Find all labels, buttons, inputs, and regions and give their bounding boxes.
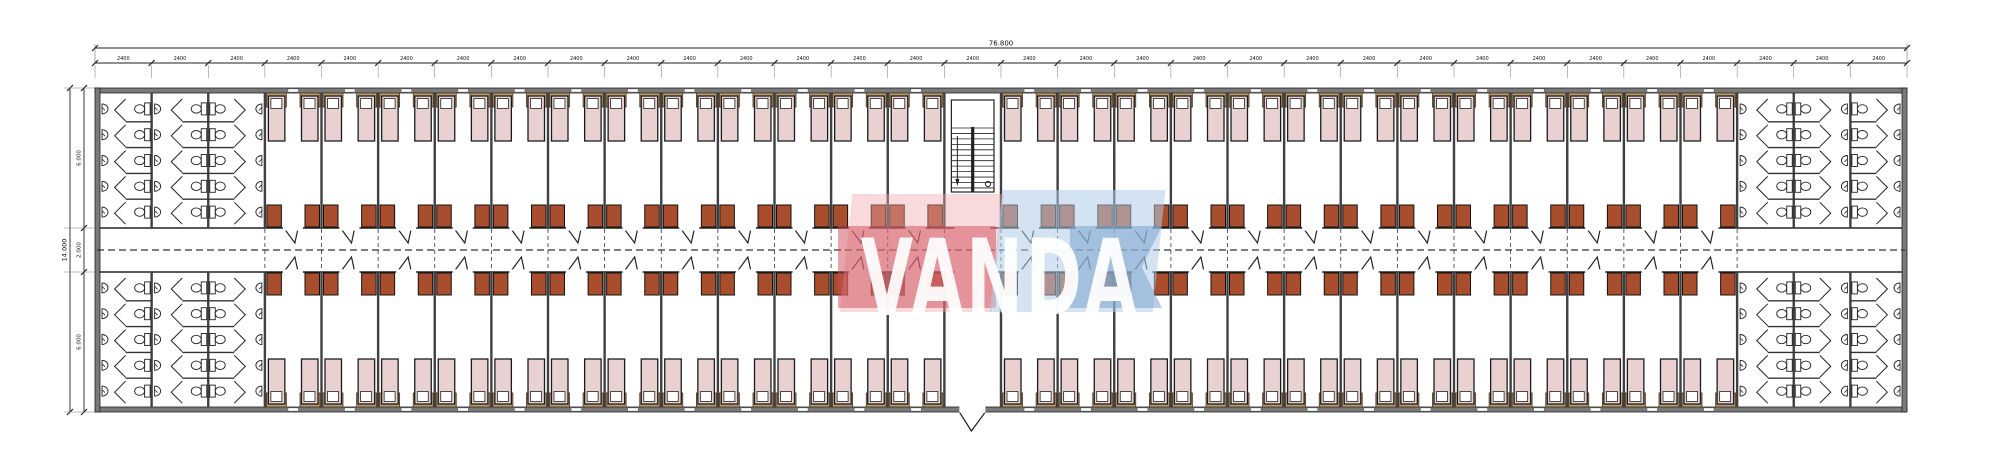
wardrobe-unit xyxy=(1721,273,1736,295)
window-opening xyxy=(798,89,809,92)
pillow xyxy=(1234,392,1245,402)
washbasin-icon xyxy=(155,104,161,114)
pillow xyxy=(1097,392,1108,402)
wardrobe-unit xyxy=(1286,205,1301,227)
pillow xyxy=(441,392,452,402)
door-swing xyxy=(234,99,245,121)
toilet-icon xyxy=(1801,182,1811,190)
toilet-icon xyxy=(1777,156,1787,164)
washbasin-icon xyxy=(256,181,262,191)
washbasin-icon xyxy=(1841,360,1847,370)
toilet-icon xyxy=(1857,182,1867,190)
toilet-icon xyxy=(210,282,216,294)
wardrobe-unit xyxy=(1456,205,1471,227)
wardrobe-unit xyxy=(1041,205,1056,227)
washbasin-icon xyxy=(256,156,262,166)
window-opening xyxy=(1477,89,1488,92)
wardrobe-unit xyxy=(1211,205,1226,227)
wardrobe-unit xyxy=(890,273,905,295)
wardrobe-unit xyxy=(1721,205,1736,227)
window-opening xyxy=(1251,89,1262,92)
pillow xyxy=(644,392,655,402)
wardrobe-unit xyxy=(1268,205,1283,227)
washbasin-icon xyxy=(155,386,161,396)
pillow xyxy=(1493,99,1504,109)
window-opening xyxy=(288,89,299,92)
pillow xyxy=(1347,392,1358,402)
wardrobe-unit xyxy=(701,273,716,295)
washbasin-icon xyxy=(256,130,262,140)
pillow xyxy=(781,99,792,109)
pillow xyxy=(1720,99,1731,109)
door-swing xyxy=(234,381,245,403)
wardrobe-unit xyxy=(720,273,735,295)
dim-bay-label: 2400 xyxy=(457,56,470,62)
toilet-icon xyxy=(145,180,151,192)
window-opening xyxy=(571,408,582,411)
washbasin-icon xyxy=(256,386,262,396)
bathroom-block-left xyxy=(102,99,262,403)
wardrobe-unit xyxy=(493,273,508,295)
wardrobe-unit xyxy=(777,205,792,227)
wardrobe-unit xyxy=(1268,273,1283,295)
door-swing xyxy=(1876,151,1887,173)
pillow xyxy=(1064,392,1075,402)
wardrobe-unit xyxy=(1230,205,1245,227)
window-opening xyxy=(1081,408,1092,411)
wardrobe-unit xyxy=(1513,205,1528,227)
toilet-icon xyxy=(1852,103,1858,115)
pillow xyxy=(1663,392,1674,402)
door-swing xyxy=(234,176,245,198)
washbasin-icon xyxy=(1841,130,1847,140)
toilet-icon xyxy=(215,284,225,292)
pillow xyxy=(667,392,678,402)
toilet-icon xyxy=(1852,308,1858,320)
washbasin-icon xyxy=(1894,309,1900,319)
toilet-icon xyxy=(1857,131,1867,139)
wardrobe-unit xyxy=(324,205,339,227)
door-swing xyxy=(1820,99,1831,121)
wardrobe-unit xyxy=(493,205,508,227)
window-opening xyxy=(1307,408,1318,411)
dimension-lines-top: 76.8002400240024002400240024002400240024… xyxy=(92,40,1910,79)
washbasin-icon xyxy=(155,181,161,191)
pillow xyxy=(700,392,711,402)
toilet-icon xyxy=(135,335,145,343)
stair-stringer xyxy=(971,127,974,192)
wardrobe-unit xyxy=(1098,273,1113,295)
pillow xyxy=(474,99,485,109)
dim-bay-label: 2400 xyxy=(1646,56,1659,62)
door-swing xyxy=(115,202,126,224)
pillow xyxy=(1290,99,1301,109)
wardrobe-unit xyxy=(1173,205,1188,227)
window-opening xyxy=(1194,89,1205,92)
entrance-door xyxy=(959,412,985,431)
toilet-icon xyxy=(135,208,145,216)
toilet-icon xyxy=(145,334,151,346)
toilet-icon xyxy=(1777,284,1787,292)
door-swing xyxy=(1876,99,1887,121)
toilet-icon xyxy=(1801,131,1811,139)
toilet-icon xyxy=(1777,131,1787,139)
toilet-icon xyxy=(1795,334,1801,346)
wardrobe-unit xyxy=(1381,205,1396,227)
pillow xyxy=(304,99,315,109)
window-opening xyxy=(1704,408,1715,411)
washbasin-icon xyxy=(1841,386,1847,396)
pillow xyxy=(384,392,395,402)
pillow xyxy=(1323,392,1334,402)
door-swing xyxy=(234,330,245,352)
door-swing xyxy=(1820,330,1831,352)
toilet-icon xyxy=(1777,361,1787,369)
wardrobe-unit xyxy=(1003,205,1018,227)
pillow xyxy=(814,392,825,402)
washbasin-icon xyxy=(1841,335,1847,345)
washbasin-icon xyxy=(1740,207,1746,217)
toilet-icon xyxy=(191,156,201,164)
wardrobe-unit xyxy=(588,205,603,227)
dim-bay-label: 2400 xyxy=(230,56,243,62)
washbasin-icon xyxy=(256,207,262,217)
window-opening xyxy=(911,89,922,92)
toilet-icon xyxy=(135,387,145,395)
wardrobe-unit xyxy=(1438,205,1453,227)
pillow xyxy=(1120,99,1131,109)
pillow xyxy=(1380,392,1391,402)
wardrobe-unit xyxy=(815,205,830,227)
pillow xyxy=(757,392,768,402)
washbasin-icon xyxy=(102,104,108,114)
window-opening xyxy=(1024,408,1035,411)
wardrobe-unit xyxy=(1626,205,1641,227)
wardrobe-unit xyxy=(267,273,282,295)
washbasin-icon xyxy=(1740,360,1746,370)
toilet-icon xyxy=(191,335,201,343)
washbasin-icon xyxy=(155,360,161,370)
pillow xyxy=(1007,99,1018,109)
pillow xyxy=(611,392,622,402)
toilet-icon xyxy=(191,284,201,292)
window-opening xyxy=(401,89,412,92)
door-swing xyxy=(1757,330,1768,352)
wardrobe-unit xyxy=(1607,273,1622,295)
pillow xyxy=(1290,392,1301,402)
wardrobe-unit xyxy=(645,205,660,227)
pillow xyxy=(724,392,735,402)
toilet-icon xyxy=(1801,156,1811,164)
wardrobe-unit xyxy=(1494,205,1509,227)
window-opening xyxy=(345,89,356,92)
pillow xyxy=(1437,392,1448,402)
door-swing xyxy=(1757,355,1768,377)
toilet-icon xyxy=(145,282,151,294)
washbasin-icon xyxy=(1740,283,1746,293)
toilet-icon xyxy=(210,308,216,320)
wardrobe-unit xyxy=(833,205,848,227)
door-swing xyxy=(115,381,126,403)
washbasin-icon xyxy=(102,360,108,370)
washbasin-icon xyxy=(1894,156,1900,166)
window-opening xyxy=(1364,89,1375,92)
toilet-icon xyxy=(1787,282,1793,294)
dim-bay-label: 2400 xyxy=(1589,56,1602,62)
window-opening xyxy=(1307,89,1318,92)
wardrobe-unit xyxy=(550,205,565,227)
toilet-icon xyxy=(201,206,207,218)
wardrobe-unit xyxy=(267,205,282,227)
door-swing xyxy=(1757,151,1768,173)
toilet-icon xyxy=(1852,206,1858,218)
pillow xyxy=(894,392,905,402)
toilet-icon xyxy=(1795,308,1801,320)
dim-left-segment-label: 2.000 xyxy=(77,242,83,258)
washbasin-icon xyxy=(1894,181,1900,191)
wardrobe-unit xyxy=(720,205,735,227)
pillow xyxy=(1007,392,1018,402)
pillow xyxy=(644,99,655,109)
door-swing xyxy=(1820,278,1831,300)
toilet-icon xyxy=(135,131,145,139)
exterior-wall-bottom xyxy=(95,407,1907,412)
dim-bay-label: 2400 xyxy=(513,56,526,62)
window-opening xyxy=(1137,408,1148,411)
toilet-icon xyxy=(135,105,145,113)
door-swing xyxy=(1820,151,1831,173)
washbasin-icon xyxy=(256,309,262,319)
washbasin-icon xyxy=(256,335,262,345)
washbasin-icon xyxy=(1841,104,1847,114)
toilet-icon xyxy=(191,105,201,113)
washbasin-icon xyxy=(155,130,161,140)
window-opening xyxy=(854,408,865,411)
door-swing xyxy=(171,304,182,326)
toilet-icon xyxy=(1857,284,1867,292)
wardrobe-unit xyxy=(1381,273,1396,295)
dim-bay-label: 2400 xyxy=(627,56,640,62)
window-opening xyxy=(854,89,865,92)
toilet-icon xyxy=(191,182,201,190)
pillow xyxy=(1517,99,1528,109)
pillow xyxy=(1460,392,1471,402)
dim-bay-label: 2400 xyxy=(343,56,356,62)
washbasin-icon xyxy=(102,181,108,191)
dim-bay-label: 2400 xyxy=(910,56,923,62)
toilet-icon xyxy=(1857,387,1867,395)
door-swing xyxy=(1876,202,1887,224)
window-opening xyxy=(1534,408,1545,411)
wardrobe-unit xyxy=(324,273,339,295)
toilet-icon xyxy=(1795,180,1801,192)
toilet-icon xyxy=(1801,105,1811,113)
washbasin-icon xyxy=(1894,104,1900,114)
toilet-icon xyxy=(1801,335,1811,343)
toilet-icon xyxy=(215,335,225,343)
dim-bay-label: 2400 xyxy=(683,56,696,62)
wardrobe-unit xyxy=(1664,205,1679,227)
wardrobe-unit xyxy=(362,205,377,227)
toilet-icon xyxy=(1787,155,1793,167)
washbasin-icon xyxy=(1740,181,1746,191)
wardrobe-unit xyxy=(1607,205,1622,227)
door-swing xyxy=(115,125,126,147)
toilet-icon xyxy=(135,361,145,369)
toilet-icon xyxy=(1852,129,1858,141)
washbasin-icon xyxy=(102,283,108,293)
wardrobe-unit xyxy=(418,273,433,295)
wardrobe-unit xyxy=(1154,205,1169,227)
door-swing xyxy=(1876,304,1887,326)
dim-bay-label: 2400 xyxy=(117,56,130,62)
wardrobe-unit xyxy=(928,273,943,295)
window-opening xyxy=(571,89,582,92)
pillow xyxy=(531,99,542,109)
wardrobe-unit xyxy=(380,273,395,295)
dim-bay-label: 2400 xyxy=(1080,56,1093,62)
door-swing xyxy=(171,151,182,173)
pillow xyxy=(1687,99,1698,109)
toilet-icon xyxy=(215,208,225,216)
dim-bay-label: 2400 xyxy=(1872,56,1885,62)
window-opening xyxy=(288,408,299,411)
pillow xyxy=(814,99,825,109)
pillow xyxy=(1460,99,1471,109)
pillow xyxy=(1573,99,1584,109)
wardrobe-unit xyxy=(305,273,320,295)
wardrobe-unit xyxy=(550,273,565,295)
pillow xyxy=(1550,99,1561,109)
toilet-icon xyxy=(135,284,145,292)
wardrobe-unit xyxy=(1116,273,1131,295)
toilet-icon xyxy=(1777,335,1787,343)
pillow xyxy=(894,99,905,109)
toilet-icon xyxy=(201,180,207,192)
door-swing xyxy=(234,355,245,377)
toilet-icon xyxy=(201,385,207,397)
wardrobe-unit xyxy=(1324,273,1339,295)
pillow xyxy=(271,99,282,109)
toilet-icon xyxy=(1777,387,1787,395)
washbasin-icon xyxy=(102,130,108,140)
wardrobe-unit xyxy=(607,205,622,227)
toilet-icon xyxy=(210,155,216,167)
wardrobe-unit xyxy=(532,273,547,295)
pillow xyxy=(271,392,282,402)
wardrobe-unit xyxy=(663,273,678,295)
toilet-icon xyxy=(201,103,207,115)
toilet-icon xyxy=(145,155,151,167)
door-swing xyxy=(234,278,245,300)
door-swing xyxy=(1820,125,1831,147)
dim-bay-label: 2400 xyxy=(966,56,979,62)
toilet-icon xyxy=(145,103,151,115)
pillow xyxy=(1210,99,1221,109)
wardrobe-unit xyxy=(1513,273,1528,295)
toilet-icon xyxy=(215,131,225,139)
door-swing xyxy=(115,355,126,377)
dim-left-segment-label: 6.000 xyxy=(77,334,83,350)
wardrobe-unit xyxy=(1098,205,1113,227)
pillow xyxy=(1323,99,1334,109)
pillow xyxy=(927,392,938,402)
wardrobe-unit xyxy=(1060,273,1075,295)
door-swing xyxy=(1757,278,1768,300)
toilet-icon xyxy=(1852,359,1858,371)
wardrobe-unit xyxy=(1683,273,1698,295)
wardrobe-unit xyxy=(1551,273,1566,295)
pillow xyxy=(384,99,395,109)
toilet-icon xyxy=(191,208,201,216)
toilet-icon xyxy=(210,180,216,192)
door-swing xyxy=(171,99,182,121)
wardrobe-unit xyxy=(1286,273,1301,295)
pillow xyxy=(1403,99,1414,109)
door-swing xyxy=(1876,278,1887,300)
wardrobe-unit xyxy=(758,273,773,295)
window-opening xyxy=(514,89,525,92)
pillow xyxy=(1120,392,1131,402)
wardrobe-unit xyxy=(380,205,395,227)
window-opening xyxy=(401,408,412,411)
wardrobe-unit xyxy=(532,205,547,227)
pillow xyxy=(1064,99,1075,109)
pillow xyxy=(417,392,428,402)
wardrobe-unit xyxy=(1041,273,1056,295)
wardrobe-unit xyxy=(418,205,433,227)
toilet-icon xyxy=(1787,385,1793,397)
washbasin-icon xyxy=(155,335,161,345)
wardrobe-unit xyxy=(588,273,603,295)
dim-bay-label: 2400 xyxy=(1533,56,1546,62)
washbasin-icon xyxy=(256,104,262,114)
toilet-icon xyxy=(1857,208,1867,216)
washbasin-icon xyxy=(1894,130,1900,140)
pillow xyxy=(1437,99,1448,109)
pillow xyxy=(1097,99,1108,109)
pillow xyxy=(1210,392,1221,402)
wardrobe-unit xyxy=(1626,273,1641,295)
toilet-icon xyxy=(1857,105,1867,113)
toilet-icon xyxy=(1787,206,1793,218)
toilet-icon xyxy=(135,310,145,318)
window-opening xyxy=(345,408,356,411)
window-opening xyxy=(1024,89,1035,92)
pillow xyxy=(1517,392,1528,402)
wardrobe-unit xyxy=(777,273,792,295)
window-opening xyxy=(1647,89,1658,92)
wardrobe-unit xyxy=(1230,273,1245,295)
wardrobe-unit xyxy=(1003,273,1018,295)
pillow xyxy=(757,99,768,109)
toilet-icon xyxy=(210,206,216,218)
door-swing xyxy=(1820,304,1831,326)
exterior-wall-top xyxy=(95,88,1907,93)
toilet-icon xyxy=(210,129,216,141)
washbasin-icon xyxy=(1841,156,1847,166)
toilet-icon xyxy=(1857,335,1867,343)
wardrobe-unit xyxy=(1551,205,1566,227)
toilet-icon xyxy=(1857,156,1867,164)
pillow xyxy=(1663,99,1674,109)
toilet-icon xyxy=(1777,208,1787,216)
window-opening xyxy=(1420,408,1431,411)
washbasin-icon xyxy=(1740,335,1746,345)
washbasin-icon xyxy=(1894,386,1900,396)
pillow xyxy=(667,99,678,109)
pillow xyxy=(1153,392,1164,402)
